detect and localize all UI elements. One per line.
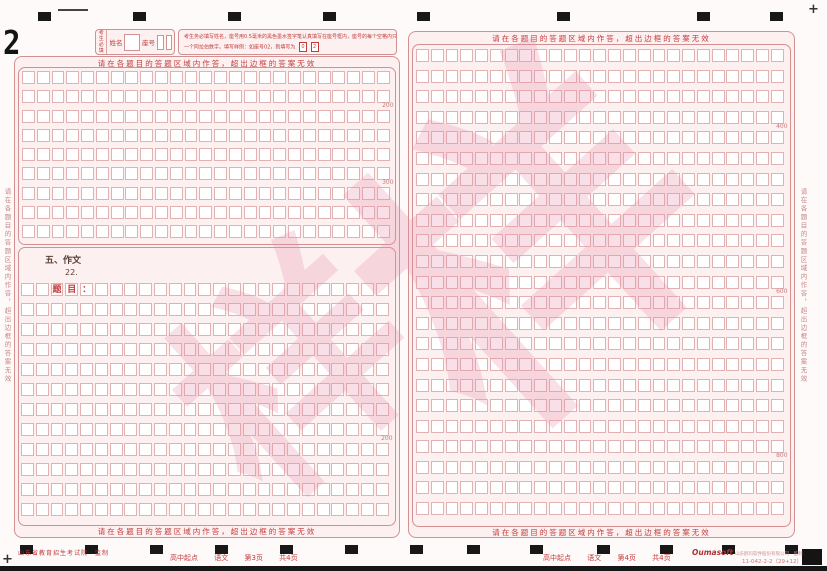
writing-cell[interactable] xyxy=(712,399,725,412)
writing-cell[interactable] xyxy=(446,379,459,392)
writing-cell[interactable] xyxy=(756,173,769,186)
writing-cell[interactable] xyxy=(139,483,152,496)
writing-cell[interactable] xyxy=(66,206,79,219)
writing-cell[interactable] xyxy=(549,214,562,227)
writing-cell[interactable] xyxy=(638,70,651,83)
writing-cell[interactable] xyxy=(362,225,375,238)
writing-cell[interactable] xyxy=(52,110,65,123)
writing-cell[interactable] xyxy=(431,173,444,186)
writing-cell[interactable] xyxy=(22,110,35,123)
writing-cell[interactable] xyxy=(534,440,547,453)
writing-cell[interactable] xyxy=(623,111,636,124)
writing-cell[interactable] xyxy=(272,363,285,376)
writing-cell[interactable] xyxy=(697,214,710,227)
writing-cell[interactable] xyxy=(682,440,695,453)
writing-cell[interactable] xyxy=(154,303,167,316)
writing-cell[interactable] xyxy=(756,317,769,330)
writing-cell[interactable] xyxy=(534,399,547,412)
writing-cell[interactable] xyxy=(741,276,754,289)
writing-cell[interactable] xyxy=(302,483,315,496)
writing-cell[interactable] xyxy=(303,110,316,123)
writing-cell[interactable] xyxy=(682,296,695,309)
writing-cell[interactable] xyxy=(505,358,518,371)
writing-cell[interactable] xyxy=(198,403,211,416)
writing-cell[interactable] xyxy=(66,71,79,84)
writing-cell[interactable] xyxy=(214,148,227,161)
writing-cell[interactable] xyxy=(667,214,680,227)
writing-cell[interactable] xyxy=(22,206,35,219)
writing-cell[interactable] xyxy=(258,323,271,336)
writing-cell[interactable] xyxy=(564,255,577,268)
writing-cell[interactable] xyxy=(22,90,35,103)
writing-cell[interactable] xyxy=(741,440,754,453)
writing-cell[interactable] xyxy=(81,225,94,238)
writing-cell[interactable] xyxy=(258,503,271,516)
writing-cell[interactable] xyxy=(726,420,739,433)
writing-cell[interactable] xyxy=(431,420,444,433)
writing-cell[interactable] xyxy=(726,255,739,268)
writing-cell[interactable] xyxy=(608,193,621,206)
writing-cell[interactable] xyxy=(475,399,488,412)
writing-cell[interactable] xyxy=(712,461,725,474)
writing-cell[interactable] xyxy=(198,463,211,476)
writing-cell[interactable] xyxy=(579,90,592,103)
writing-cell[interactable] xyxy=(697,502,710,515)
writing-cell[interactable] xyxy=(317,443,330,456)
writing-cell[interactable] xyxy=(726,49,739,62)
writing-cell[interactable] xyxy=(184,503,197,516)
writing-cell[interactable] xyxy=(490,420,503,433)
writing-cell[interactable] xyxy=(726,131,739,144)
writing-cell[interactable] xyxy=(140,90,153,103)
writing-cell[interactable] xyxy=(302,423,315,436)
writing-cell[interactable] xyxy=(623,173,636,186)
writing-cell[interactable] xyxy=(199,206,212,219)
writing-cell[interactable] xyxy=(288,225,301,238)
writing-cell[interactable] xyxy=(185,148,198,161)
writing-cell[interactable] xyxy=(416,234,429,247)
writing-cell[interactable] xyxy=(258,343,271,356)
writing-cell[interactable] xyxy=(81,206,94,219)
writing-cell[interactable] xyxy=(505,152,518,165)
writing-cell[interactable] xyxy=(697,440,710,453)
writing-cell[interactable] xyxy=(519,399,532,412)
writing-cell[interactable] xyxy=(244,187,257,200)
writing-cell[interactable] xyxy=(608,358,621,371)
writing-cell[interactable] xyxy=(519,49,532,62)
writing-cell[interactable] xyxy=(608,131,621,144)
writing-cell[interactable] xyxy=(741,337,754,350)
writing-cell[interactable] xyxy=(475,49,488,62)
writing-cell[interactable] xyxy=(593,152,606,165)
writing-cell[interactable] xyxy=(154,283,167,296)
writing-cell[interactable] xyxy=(579,399,592,412)
writing-cell[interactable] xyxy=(95,363,108,376)
writing-cell[interactable] xyxy=(475,481,488,494)
writing-cell[interactable] xyxy=(154,383,167,396)
writing-cell[interactable] xyxy=(362,206,375,219)
writing-cell[interactable] xyxy=(36,283,49,296)
writing-cell[interactable] xyxy=(36,463,49,476)
writing-cell[interactable] xyxy=(139,323,152,336)
writing-cell[interactable] xyxy=(213,383,226,396)
writing-cell[interactable] xyxy=(490,399,503,412)
writing-cell[interactable] xyxy=(199,148,212,161)
writing-cell[interactable] xyxy=(318,90,331,103)
writing-cell[interactable] xyxy=(446,131,459,144)
writing-cell[interactable] xyxy=(608,379,621,392)
writing-cell[interactable] xyxy=(318,71,331,84)
writing-cell[interactable] xyxy=(741,173,754,186)
writing-cell[interactable] xyxy=(36,443,49,456)
writing-cell[interactable] xyxy=(416,131,429,144)
writing-cell[interactable] xyxy=(80,443,93,456)
writing-cell[interactable] xyxy=(244,129,257,142)
writing-cell[interactable] xyxy=(81,71,94,84)
writing-cell[interactable] xyxy=(155,206,168,219)
writing-cell[interactable] xyxy=(332,110,345,123)
writing-cell[interactable] xyxy=(416,173,429,186)
writing-cell[interactable] xyxy=(431,502,444,515)
writing-cell[interactable] xyxy=(623,481,636,494)
writing-cell[interactable] xyxy=(110,363,123,376)
writing-cell[interactable] xyxy=(534,131,547,144)
writing-cell[interactable] xyxy=(302,283,315,296)
writing-cell[interactable] xyxy=(519,234,532,247)
writing-cell[interactable] xyxy=(52,167,65,180)
writing-cell[interactable] xyxy=(667,296,680,309)
writing-cell[interactable] xyxy=(198,483,211,496)
writing-cell[interactable] xyxy=(273,71,286,84)
writing-cell[interactable] xyxy=(243,463,256,476)
writing-cell[interactable] xyxy=(579,481,592,494)
writing-cell[interactable] xyxy=(623,502,636,515)
writing-cell[interactable] xyxy=(140,167,153,180)
writing-cell[interactable] xyxy=(22,71,35,84)
writing-cell[interactable] xyxy=(110,463,123,476)
writing-cell[interactable] xyxy=(258,383,271,396)
writing-cell[interactable] xyxy=(667,379,680,392)
writing-cell[interactable] xyxy=(95,403,108,416)
writing-cell[interactable] xyxy=(259,187,272,200)
writing-cell[interactable] xyxy=(198,343,211,356)
writing-cell[interactable] xyxy=(726,481,739,494)
writing-cell[interactable] xyxy=(505,234,518,247)
writing-cell[interactable] xyxy=(490,317,503,330)
writing-cell[interactable] xyxy=(712,131,725,144)
writing-cell[interactable] xyxy=(446,317,459,330)
writing-cell[interactable] xyxy=(741,131,754,144)
writing-cell[interactable] xyxy=(287,443,300,456)
writing-cell[interactable] xyxy=(446,276,459,289)
writing-cell[interactable] xyxy=(332,90,345,103)
writing-cell[interactable] xyxy=(549,49,562,62)
writing-cell[interactable] xyxy=(608,276,621,289)
writing-cell[interactable] xyxy=(36,383,49,396)
writing-cell[interactable] xyxy=(65,483,78,496)
writing-cell[interactable] xyxy=(579,502,592,515)
writing-cell[interactable] xyxy=(519,481,532,494)
writing-cell[interactable] xyxy=(346,283,359,296)
writing-cell[interactable] xyxy=(96,206,109,219)
writing-cell[interactable] xyxy=(377,206,390,219)
writing-cell[interactable] xyxy=(110,443,123,456)
writing-cell[interactable] xyxy=(170,129,183,142)
writing-cell[interactable] xyxy=(111,110,124,123)
writing-cell[interactable] xyxy=(682,399,695,412)
writing-cell[interactable] xyxy=(490,49,503,62)
writing-cell[interactable] xyxy=(475,317,488,330)
writing-cell[interactable] xyxy=(638,481,651,494)
writing-cell[interactable] xyxy=(549,379,562,392)
writing-cell[interactable] xyxy=(66,110,79,123)
writing-cell[interactable] xyxy=(228,283,241,296)
writing-cell[interactable] xyxy=(361,503,374,516)
writing-cell[interactable] xyxy=(125,90,138,103)
writing-cell[interactable] xyxy=(303,148,316,161)
writing-cell[interactable] xyxy=(490,481,503,494)
writing-cell[interactable] xyxy=(460,70,473,83)
writing-cell[interactable] xyxy=(771,193,784,206)
writing-cell[interactable] xyxy=(272,403,285,416)
writing-cell[interactable] xyxy=(475,214,488,227)
writing-cell[interactable] xyxy=(460,173,473,186)
writing-cell[interactable] xyxy=(653,379,666,392)
writing-cell[interactable] xyxy=(36,363,49,376)
writing-cell[interactable] xyxy=(579,358,592,371)
writing-cell[interactable] xyxy=(771,152,784,165)
writing-cell[interactable] xyxy=(361,463,374,476)
writing-cell[interactable] xyxy=(623,317,636,330)
writing-cell[interactable] xyxy=(490,358,503,371)
writing-cell[interactable] xyxy=(697,111,710,124)
writing-cell[interactable] xyxy=(623,440,636,453)
writing-cell[interactable] xyxy=(756,234,769,247)
writing-cell[interactable] xyxy=(65,383,78,396)
writing-cell[interactable] xyxy=(593,276,606,289)
writing-cell[interactable] xyxy=(460,461,473,474)
writing-cell[interactable] xyxy=(287,483,300,496)
writing-cell[interactable] xyxy=(111,225,124,238)
prefilled-cell[interactable]: ： xyxy=(80,283,93,296)
writing-cell[interactable] xyxy=(243,423,256,436)
writing-cell[interactable] xyxy=(302,343,315,356)
writing-cell[interactable] xyxy=(169,363,182,376)
writing-cell[interactable] xyxy=(490,111,503,124)
writing-cell[interactable] xyxy=(505,90,518,103)
writing-cell[interactable] xyxy=(534,111,547,124)
writing-cell[interactable] xyxy=(712,317,725,330)
writing-cell[interactable] xyxy=(36,343,49,356)
writing-cell[interactable] xyxy=(460,276,473,289)
writing-cell[interactable] xyxy=(303,225,316,238)
writing-cell[interactable] xyxy=(534,214,547,227)
writing-cell[interactable] xyxy=(519,379,532,392)
writing-cell[interactable] xyxy=(81,110,94,123)
writing-cell[interactable] xyxy=(756,481,769,494)
writing-cell[interactable] xyxy=(244,148,257,161)
writing-cell[interactable] xyxy=(229,129,242,142)
writing-cell[interactable] xyxy=(564,358,577,371)
writing-cell[interactable] xyxy=(564,111,577,124)
writing-cell[interactable] xyxy=(431,234,444,247)
writing-cell[interactable] xyxy=(475,461,488,474)
writing-cell[interactable] xyxy=(756,502,769,515)
writing-cell[interactable] xyxy=(243,323,256,336)
writing-cell[interactable] xyxy=(638,214,651,227)
writing-cell[interactable] xyxy=(81,148,94,161)
writing-cell[interactable] xyxy=(593,379,606,392)
writing-cell[interactable] xyxy=(21,303,34,316)
writing-cell[interactable] xyxy=(346,383,359,396)
writing-cell[interactable] xyxy=(21,343,34,356)
writing-cell[interactable] xyxy=(505,337,518,350)
writing-cell[interactable] xyxy=(653,131,666,144)
writing-cell[interactable] xyxy=(741,49,754,62)
writing-cell[interactable] xyxy=(362,71,375,84)
writing-cell[interactable] xyxy=(431,440,444,453)
writing-cell[interactable] xyxy=(96,129,109,142)
writing-cell[interactable] xyxy=(638,440,651,453)
writing-cell[interactable] xyxy=(741,502,754,515)
writing-cell[interactable] xyxy=(376,363,389,376)
writing-cell[interactable] xyxy=(65,463,78,476)
writing-cell[interactable] xyxy=(346,463,359,476)
writing-cell[interactable] xyxy=(169,423,182,436)
writing-cell[interactable] xyxy=(623,420,636,433)
writing-cell[interactable] xyxy=(505,481,518,494)
writing-cell[interactable] xyxy=(184,363,197,376)
writing-cell[interactable] xyxy=(653,481,666,494)
writing-cell[interactable] xyxy=(228,403,241,416)
writing-cell[interactable] xyxy=(667,399,680,412)
writing-cell[interactable] xyxy=(346,443,359,456)
writing-cell[interactable] xyxy=(259,90,272,103)
writing-cell[interactable] xyxy=(638,234,651,247)
writing-cell[interactable] xyxy=(346,303,359,316)
writing-cell[interactable] xyxy=(653,502,666,515)
writing-cell[interactable] xyxy=(317,463,330,476)
writing-cell[interactable] xyxy=(608,296,621,309)
writing-cell[interactable] xyxy=(229,110,242,123)
writing-cell[interactable] xyxy=(65,403,78,416)
writing-cell[interactable] xyxy=(213,343,226,356)
writing-cell[interactable] xyxy=(170,167,183,180)
writing-cell[interactable] xyxy=(213,503,226,516)
writing-cell[interactable] xyxy=(490,173,503,186)
writing-cell[interactable] xyxy=(416,255,429,268)
writing-cell[interactable] xyxy=(272,343,285,356)
writing-cell[interactable] xyxy=(21,323,34,336)
writing-cell[interactable] xyxy=(623,379,636,392)
writing-cell[interactable] xyxy=(36,323,49,336)
writing-cell[interactable] xyxy=(519,90,532,103)
writing-cell[interactable] xyxy=(741,399,754,412)
writing-cell[interactable] xyxy=(124,443,137,456)
writing-cell[interactable] xyxy=(534,70,547,83)
writing-cell[interactable] xyxy=(198,383,211,396)
writing-cell[interactable] xyxy=(682,420,695,433)
writing-cell[interactable] xyxy=(21,443,34,456)
writing-cell[interactable] xyxy=(446,90,459,103)
writing-cell[interactable] xyxy=(95,303,108,316)
writing-cell[interactable] xyxy=(229,206,242,219)
writing-cell[interactable] xyxy=(169,403,182,416)
writing-cell[interactable] xyxy=(287,503,300,516)
writing-cell[interactable] xyxy=(431,317,444,330)
writing-cell[interactable] xyxy=(37,225,50,238)
writing-cell[interactable] xyxy=(564,234,577,247)
writing-cell[interactable] xyxy=(361,283,374,296)
writing-cell[interactable] xyxy=(579,317,592,330)
writing-cell[interactable] xyxy=(549,276,562,289)
writing-cell[interactable] xyxy=(475,193,488,206)
writing-cell[interactable] xyxy=(519,214,532,227)
writing-cell[interactable] xyxy=(214,187,227,200)
writing-cell[interactable] xyxy=(756,193,769,206)
writing-cell[interactable] xyxy=(549,420,562,433)
writing-cell[interactable] xyxy=(712,276,725,289)
writing-cell[interactable] xyxy=(638,461,651,474)
writing-cell[interactable] xyxy=(199,129,212,142)
writing-cell[interactable] xyxy=(726,461,739,474)
writing-cell[interactable] xyxy=(213,463,226,476)
writing-cell[interactable] xyxy=(712,337,725,350)
writing-cell[interactable] xyxy=(741,214,754,227)
writing-cell[interactable] xyxy=(741,70,754,83)
writing-cell[interactable] xyxy=(199,225,212,238)
writing-cell[interactable] xyxy=(169,483,182,496)
writing-cell[interactable] xyxy=(446,296,459,309)
writing-cell[interactable] xyxy=(81,167,94,180)
writing-cell[interactable] xyxy=(741,481,754,494)
writing-cell[interactable] xyxy=(667,358,680,371)
writing-cell[interactable] xyxy=(155,71,168,84)
writing-cell[interactable] xyxy=(505,502,518,515)
writing-cell[interactable] xyxy=(505,111,518,124)
writing-cell[interactable] xyxy=(347,90,360,103)
writing-cell[interactable] xyxy=(361,303,374,316)
writing-cell[interactable] xyxy=(475,420,488,433)
writing-cell[interactable] xyxy=(697,317,710,330)
writing-cell[interactable] xyxy=(697,70,710,83)
writing-cell[interactable] xyxy=(258,363,271,376)
writing-cell[interactable] xyxy=(653,399,666,412)
writing-cell[interactable] xyxy=(185,225,198,238)
writing-cell[interactable] xyxy=(317,323,330,336)
writing-cell[interactable] xyxy=(741,420,754,433)
writing-cell[interactable] xyxy=(229,167,242,180)
writing-cell[interactable] xyxy=(534,193,547,206)
writing-cell[interactable] xyxy=(756,358,769,371)
writing-cell[interactable] xyxy=(505,49,518,62)
writing-cell[interactable] xyxy=(347,71,360,84)
writing-cell[interactable] xyxy=(22,187,35,200)
writing-cell[interactable] xyxy=(460,317,473,330)
writing-cell[interactable] xyxy=(460,502,473,515)
writing-cell[interactable] xyxy=(199,110,212,123)
writing-cell[interactable] xyxy=(549,111,562,124)
writing-cell[interactable] xyxy=(697,399,710,412)
writing-cell[interactable] xyxy=(229,225,242,238)
writing-cell[interactable] xyxy=(490,440,503,453)
writing-cell[interactable] xyxy=(490,193,503,206)
writing-cell[interactable] xyxy=(638,111,651,124)
writing-cell[interactable] xyxy=(95,483,108,496)
writing-cell[interactable] xyxy=(475,337,488,350)
writing-cell[interactable] xyxy=(37,206,50,219)
writing-cell[interactable] xyxy=(593,111,606,124)
